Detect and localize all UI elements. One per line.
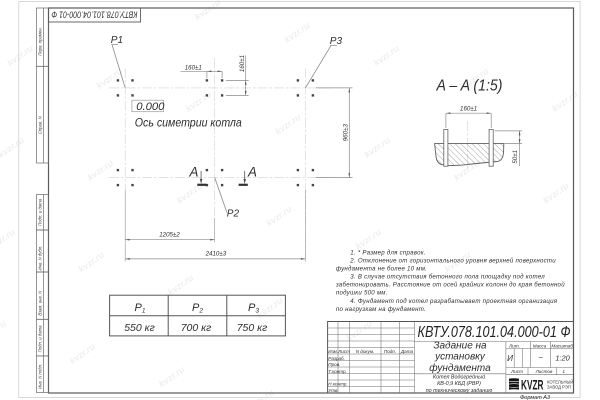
svg-text:Пров.: Пров. bbox=[328, 362, 340, 367]
svg-text:A – A (1:5): A – A (1:5) bbox=[436, 77, 503, 94]
svg-text:Масса: Масса bbox=[533, 343, 547, 348]
svg-text:Подп. и дата: Подп. и дата bbox=[38, 325, 43, 353]
svg-text:A: A bbox=[247, 164, 257, 179]
svg-text:N докум.: N докум. bbox=[356, 349, 375, 354]
svg-text:Лит.: Лит. bbox=[508, 343, 520, 348]
svg-text:Справ. N: Справ. N bbox=[38, 115, 43, 134]
svg-text:0.000: 0.000 bbox=[136, 101, 165, 113]
svg-text:960±3: 960±3 bbox=[342, 124, 349, 142]
svg-text:по нагрузкам на фундамент.: по нагрузкам на фундамент. bbox=[336, 306, 426, 313]
svg-text:Утв.: Утв. bbox=[328, 388, 338, 393]
svg-text:Инв. N подл.: Инв. N подл. bbox=[38, 364, 43, 389]
svg-text:забетонировать. Расстояние от: забетонировать. Расстояние от осей крайн… bbox=[335, 282, 565, 289]
svg-text:Подп. и дата: Подп. и дата bbox=[38, 198, 43, 226]
svg-text:1:20: 1:20 bbox=[555, 354, 570, 363]
svg-text:Т.контр.: Т.контр. bbox=[328, 369, 347, 374]
svg-text:160±1: 160±1 bbox=[460, 105, 477, 112]
svg-text:Изм.Лист: Изм.Лист bbox=[328, 349, 350, 354]
svg-text:Ось симетрии котла: Ось симетрии котла bbox=[135, 116, 242, 130]
svg-text:Взам. инв. N: Взам. инв. N bbox=[38, 290, 43, 316]
svg-text:Лист: Лист bbox=[510, 369, 523, 374]
svg-text:КВ-0,9 КБД (РВР): КВ-0,9 КБД (РВР) bbox=[437, 381, 481, 387]
svg-text:3. В случае отсутствия бетонно: 3. В случае отсутствия бетонного пола пл… bbox=[350, 274, 545, 281]
svg-text:фундамента: фундамента bbox=[429, 362, 491, 374]
svg-text:КВТУ.078.101.04.000-01 Ф: КВТУ.078.101.04.000-01 Ф bbox=[418, 324, 571, 341]
svg-text:KVZR: KVZR bbox=[521, 376, 544, 392]
svg-text:4. Фундамент под котел разраба: 4. Фундамент под котел разрабатывает про… bbox=[350, 298, 557, 305]
svg-text:Перв. примен.: Перв. примен. bbox=[38, 27, 43, 56]
svg-text:И: И bbox=[507, 354, 513, 363]
svg-text:50±1: 50±1 bbox=[512, 150, 519, 164]
svg-text:установку: установку bbox=[434, 352, 486, 363]
svg-text:Подп.: Подп. bbox=[384, 349, 396, 354]
svg-text:Дата: Дата bbox=[400, 349, 414, 354]
svg-text:Задание на: Задание на bbox=[433, 341, 487, 352]
svg-text:1. * Размер для справок.: 1. * Размер для справок. bbox=[350, 249, 426, 256]
svg-text:2. Отклонение от горизонтально: 2. Отклонение от горизонтального уровня … bbox=[349, 257, 556, 264]
svg-text:Формат А3: Формат А3 bbox=[520, 395, 551, 400]
svg-text:ЗАВОД РЭП: ЗАВОД РЭП bbox=[547, 384, 571, 389]
svg-text:подушки 500 мм.: подушки 500 мм. bbox=[336, 290, 388, 297]
svg-text:Масштаб: Масштаб bbox=[551, 343, 573, 348]
svg-text:1: 1 bbox=[562, 369, 565, 374]
svg-text:700 кг: 700 кг bbox=[181, 322, 212, 334]
svg-text:Листов: Листов bbox=[535, 369, 553, 374]
svg-text:фундамента не более 10 мм.: фундамента не более 10 мм. bbox=[336, 266, 427, 273]
svg-text:Н.контр.: Н.контр. bbox=[328, 382, 347, 387]
svg-text:P2: P2 bbox=[227, 208, 240, 219]
svg-text:–: – bbox=[538, 353, 544, 362]
svg-text:КВТУ.078.101.04.000-01 Ф: КВТУ.078.101.04.000-01 Ф bbox=[52, 10, 138, 20]
svg-text:Котел Водогрейный: Котел Водогрейный bbox=[433, 374, 485, 381]
svg-text:Инв. N дубл.: Инв. N дубл. bbox=[38, 246, 43, 271]
svg-text:160±1: 160±1 bbox=[185, 65, 202, 72]
svg-text:750 кг: 750 кг bbox=[237, 322, 268, 334]
svg-text:2410±3: 2410±3 bbox=[205, 250, 227, 257]
svg-text:550 кг: 550 кг bbox=[124, 322, 155, 334]
svg-text:Разраб.: Разраб. bbox=[328, 356, 345, 361]
svg-text:по техническому заданию: по техническому заданию bbox=[426, 388, 493, 394]
svg-text:1205±2: 1205±2 bbox=[159, 231, 180, 238]
svg-text:160±1: 160±1 bbox=[239, 55, 246, 72]
svg-text:A: A bbox=[189, 164, 199, 179]
